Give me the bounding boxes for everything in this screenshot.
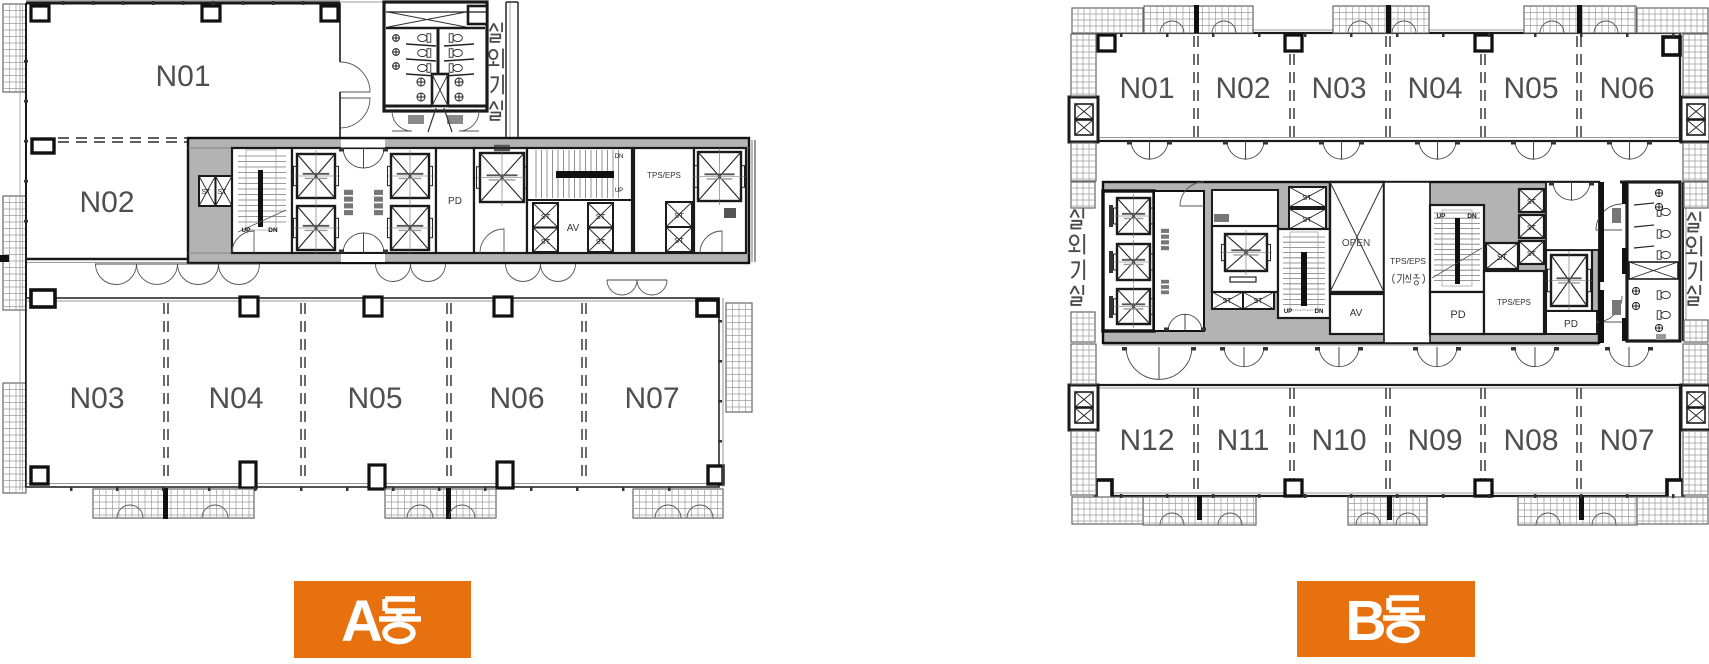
svg-text:ST: ST	[1497, 253, 1507, 262]
svg-text:ST: ST	[1302, 193, 1312, 202]
svg-text:ST: ST	[218, 189, 228, 196]
svg-text:N07: N07	[624, 382, 679, 415]
svg-text:B: B	[1345, 589, 1386, 653]
svg-text:N03: N03	[69, 382, 124, 415]
svg-text:DN: DN	[1467, 213, 1477, 220]
svg-text:N05: N05	[347, 382, 402, 415]
svg-text:N12: N12	[1119, 424, 1174, 457]
svg-text:ST: ST	[202, 189, 212, 196]
svg-text:ST: ST	[541, 237, 551, 246]
svg-text:OPEN: OPEN	[1342, 238, 1370, 249]
svg-text:N07: N07	[1599, 424, 1654, 457]
svg-text:N02: N02	[1215, 72, 1270, 105]
svg-text:N04: N04	[208, 382, 263, 415]
svg-text:ST: ST	[674, 236, 684, 245]
svg-text:N03: N03	[1311, 72, 1366, 105]
svg-text:N02: N02	[79, 186, 134, 219]
svg-text:DN: DN	[1315, 309, 1324, 315]
svg-text:A: A	[341, 589, 383, 654]
svg-text:UP: UP	[615, 188, 623, 194]
svg-text:AV: AV	[567, 223, 580, 234]
svg-text:ST: ST	[1254, 298, 1264, 305]
svg-text:ST: ST	[596, 212, 606, 221]
svg-text:N08: N08	[1503, 424, 1558, 457]
svg-text:TPS/EPS: TPS/EPS	[647, 171, 681, 180]
svg-text:DN: DN	[615, 154, 624, 160]
svg-text:N10: N10	[1311, 424, 1366, 457]
svg-text:N11: N11	[1217, 424, 1270, 457]
svg-text:AV: AV	[1350, 308, 1363, 319]
svg-text:UP: UP	[1436, 213, 1446, 220]
svg-text:UP: UP	[1284, 309, 1292, 315]
svg-text:ST: ST	[596, 237, 606, 246]
svg-text:N06: N06	[1599, 72, 1654, 105]
svg-text:PD: PD	[1450, 309, 1465, 321]
svg-text:ST: ST	[1527, 199, 1537, 206]
svg-text:N01: N01	[1119, 72, 1174, 105]
svg-text:UP: UP	[241, 227, 251, 234]
svg-text:N04: N04	[1407, 72, 1462, 105]
svg-text:ST: ST	[1223, 298, 1233, 305]
svg-text:ST: ST	[541, 212, 551, 221]
svg-text:N01: N01	[155, 60, 210, 93]
svg-text:N09: N09	[1407, 424, 1462, 457]
svg-text:ST: ST	[1527, 251, 1537, 258]
svg-text:TPS/EPS: TPS/EPS	[1390, 256, 1426, 266]
svg-text:ST: ST	[1302, 215, 1312, 224]
svg-text:DN: DN	[268, 227, 278, 234]
svg-text:ST: ST	[674, 211, 684, 220]
svg-text:TPS/EPS: TPS/EPS	[1497, 298, 1531, 307]
svg-text:ST: ST	[1527, 225, 1537, 232]
svg-text:PD: PD	[448, 196, 462, 207]
svg-text:N06: N06	[489, 382, 544, 415]
svg-text:N05: N05	[1503, 72, 1558, 105]
svg-text:PD: PD	[1564, 319, 1578, 330]
